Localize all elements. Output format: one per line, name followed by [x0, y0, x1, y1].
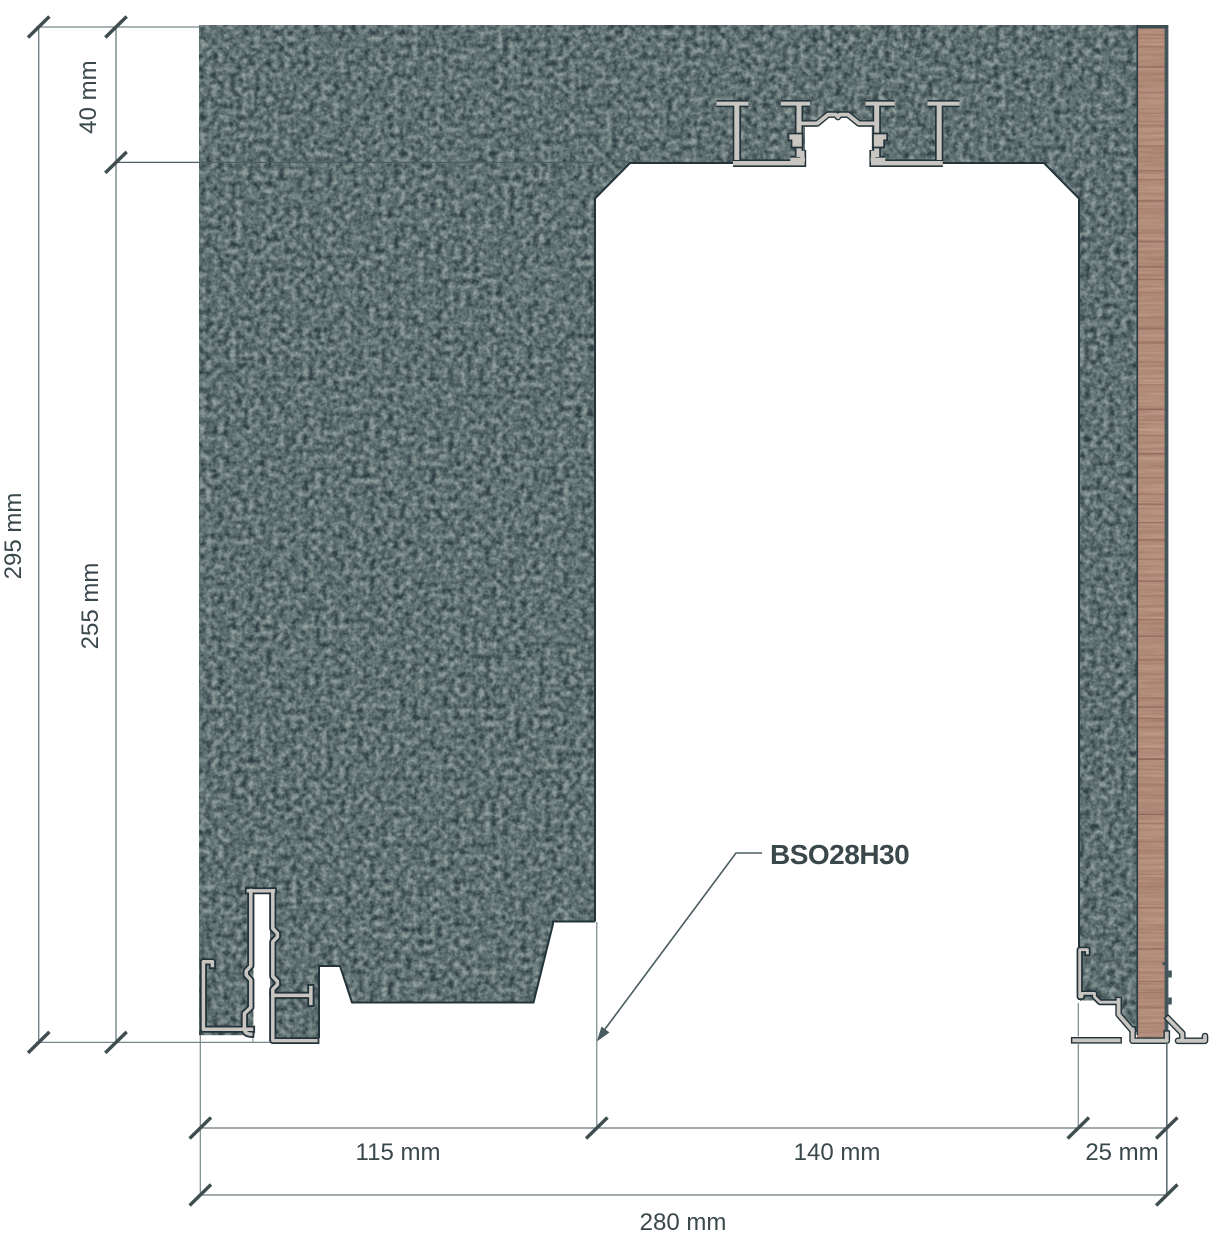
svg-text:295 mm: 295 mm: [0, 493, 27, 580]
svg-text:BSO28H30: BSO28H30: [770, 839, 909, 870]
svg-text:40 mm: 40 mm: [75, 60, 102, 133]
svg-text:25 mm: 25 mm: [1085, 1139, 1158, 1166]
svg-text:280 mm: 280 mm: [640, 1209, 727, 1236]
svg-text:255 mm: 255 mm: [77, 563, 104, 650]
svg-text:140 mm: 140 mm: [794, 1139, 881, 1166]
svg-text:115 mm: 115 mm: [356, 1139, 441, 1166]
